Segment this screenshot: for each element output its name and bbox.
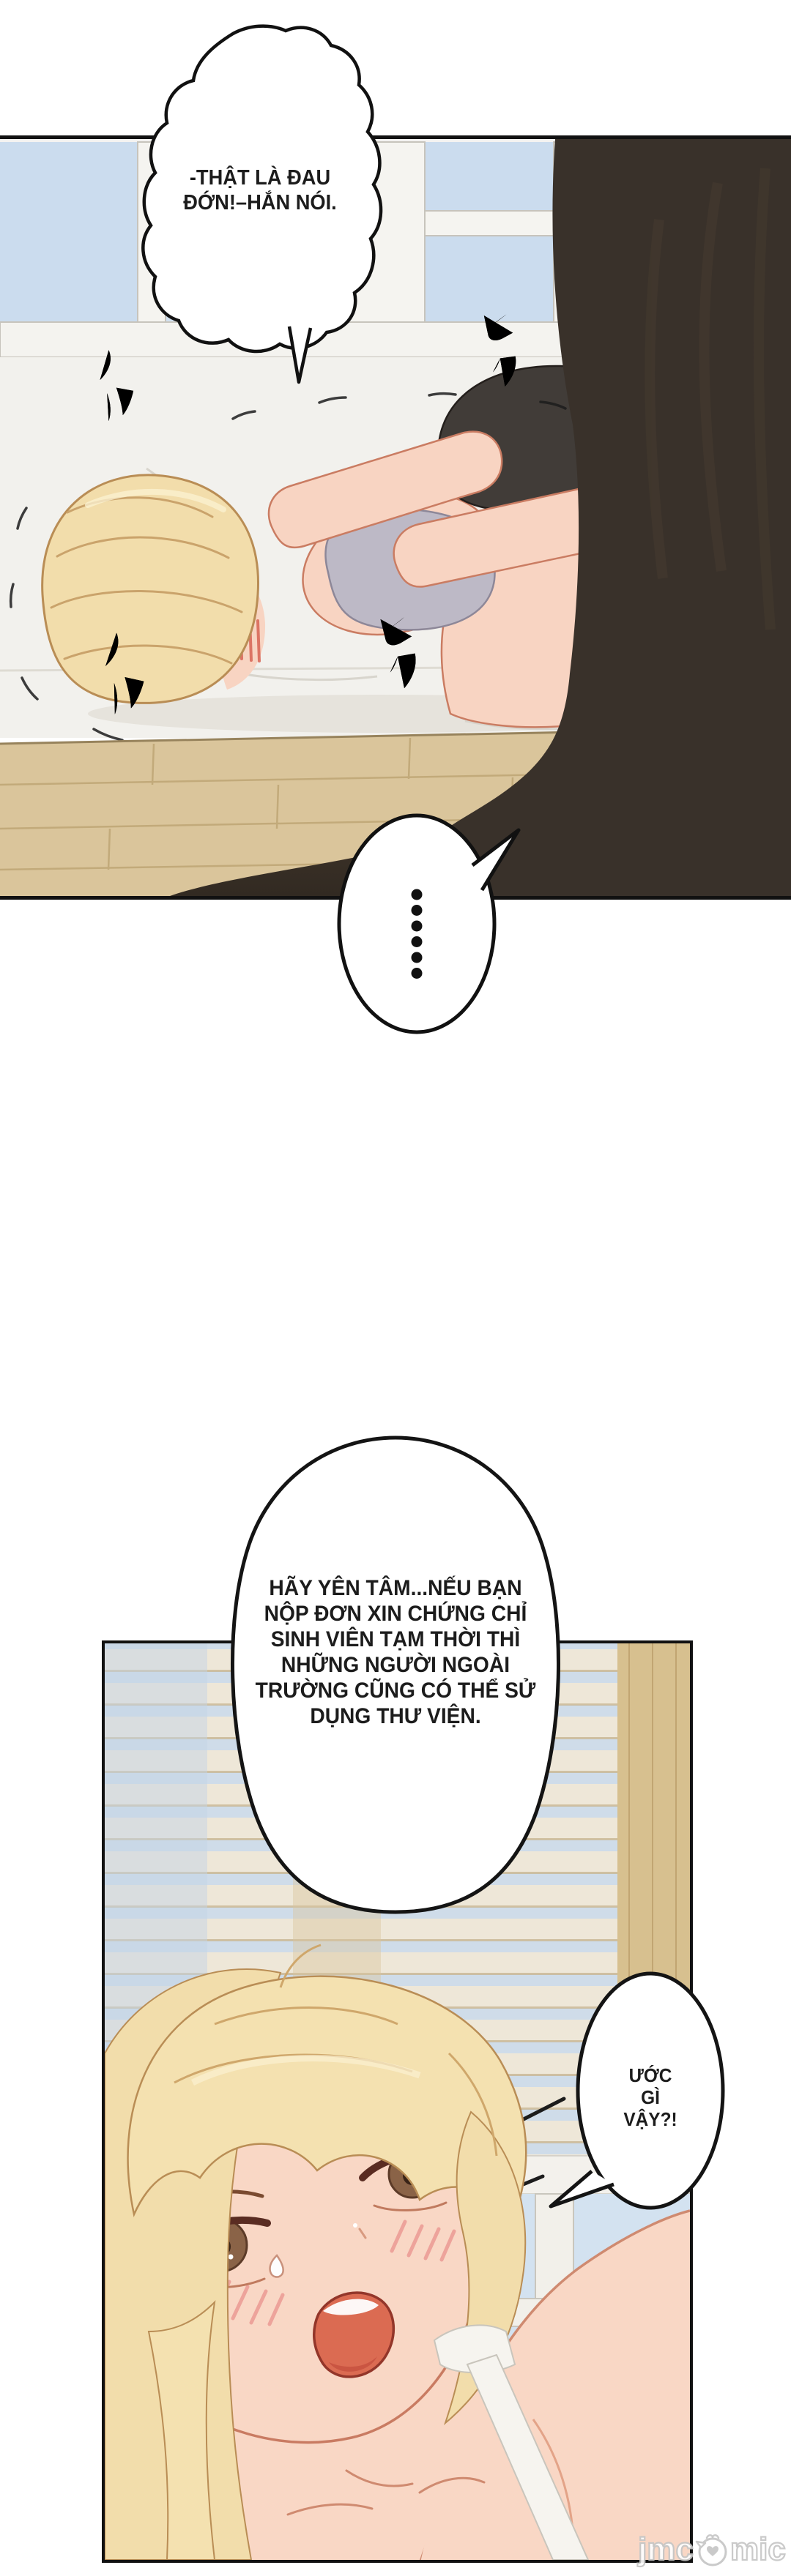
dialogue-line: SINH VIÊN TẠM THỜI THÌ — [242, 1627, 548, 1652]
speech-bubble-pain-text: -THẬT LÀ ĐAU ĐỚN!–HẮN NÓI. — [168, 165, 352, 215]
dialogue-line: GÌ — [594, 2086, 707, 2108]
dialogue-line: ĐỚN!–HẮN NÓI. — [168, 190, 352, 215]
dialogue-line: TRƯỜNG CŨNG CÓ THỂ SỬ — [242, 1678, 548, 1703]
panel-bedroom — [0, 135, 791, 900]
dialogue-line: NỘP ĐƠN XIN CHỨNG CHỈ — [242, 1601, 548, 1627]
comic-page: ブル ビク ブル ビク — [0, 0, 791, 2576]
dialogue-line: NHỮNG NGƯỜI NGOÀI — [242, 1652, 548, 1678]
dialogue-line: VẬY?! — [594, 2108, 707, 2130]
fish-heart-icon — [695, 2531, 729, 2568]
dialogue-line: HÃY YÊN TÂM...NẾU BẠN — [242, 1575, 548, 1601]
bubble-tail — [472, 830, 519, 890]
panel1-art — [0, 139, 791, 896]
speech-bubble-wish-text: ƯỚC GÌ VẬY?! — [594, 2064, 707, 2130]
watermark-prefix: jmc — [638, 2531, 694, 2568]
dialogue-line: ƯỚC — [594, 2064, 707, 2086]
ellipsis-bubble — [322, 808, 542, 1057]
watermark: jmc mic — [634, 2527, 790, 2572]
bubble-tail — [289, 326, 311, 382]
dialogue-line: DỤNG THƯ VIỆN. — [242, 1703, 548, 1729]
dialogue-line: -THẬT LÀ ĐAU — [168, 165, 352, 190]
watermark-suffix: mic — [730, 2531, 786, 2568]
narration-bubble-text: HÃY YÊN TÂM...NẾU BẠN NỘP ĐƠN XIN CHỨNG … — [242, 1575, 548, 1729]
